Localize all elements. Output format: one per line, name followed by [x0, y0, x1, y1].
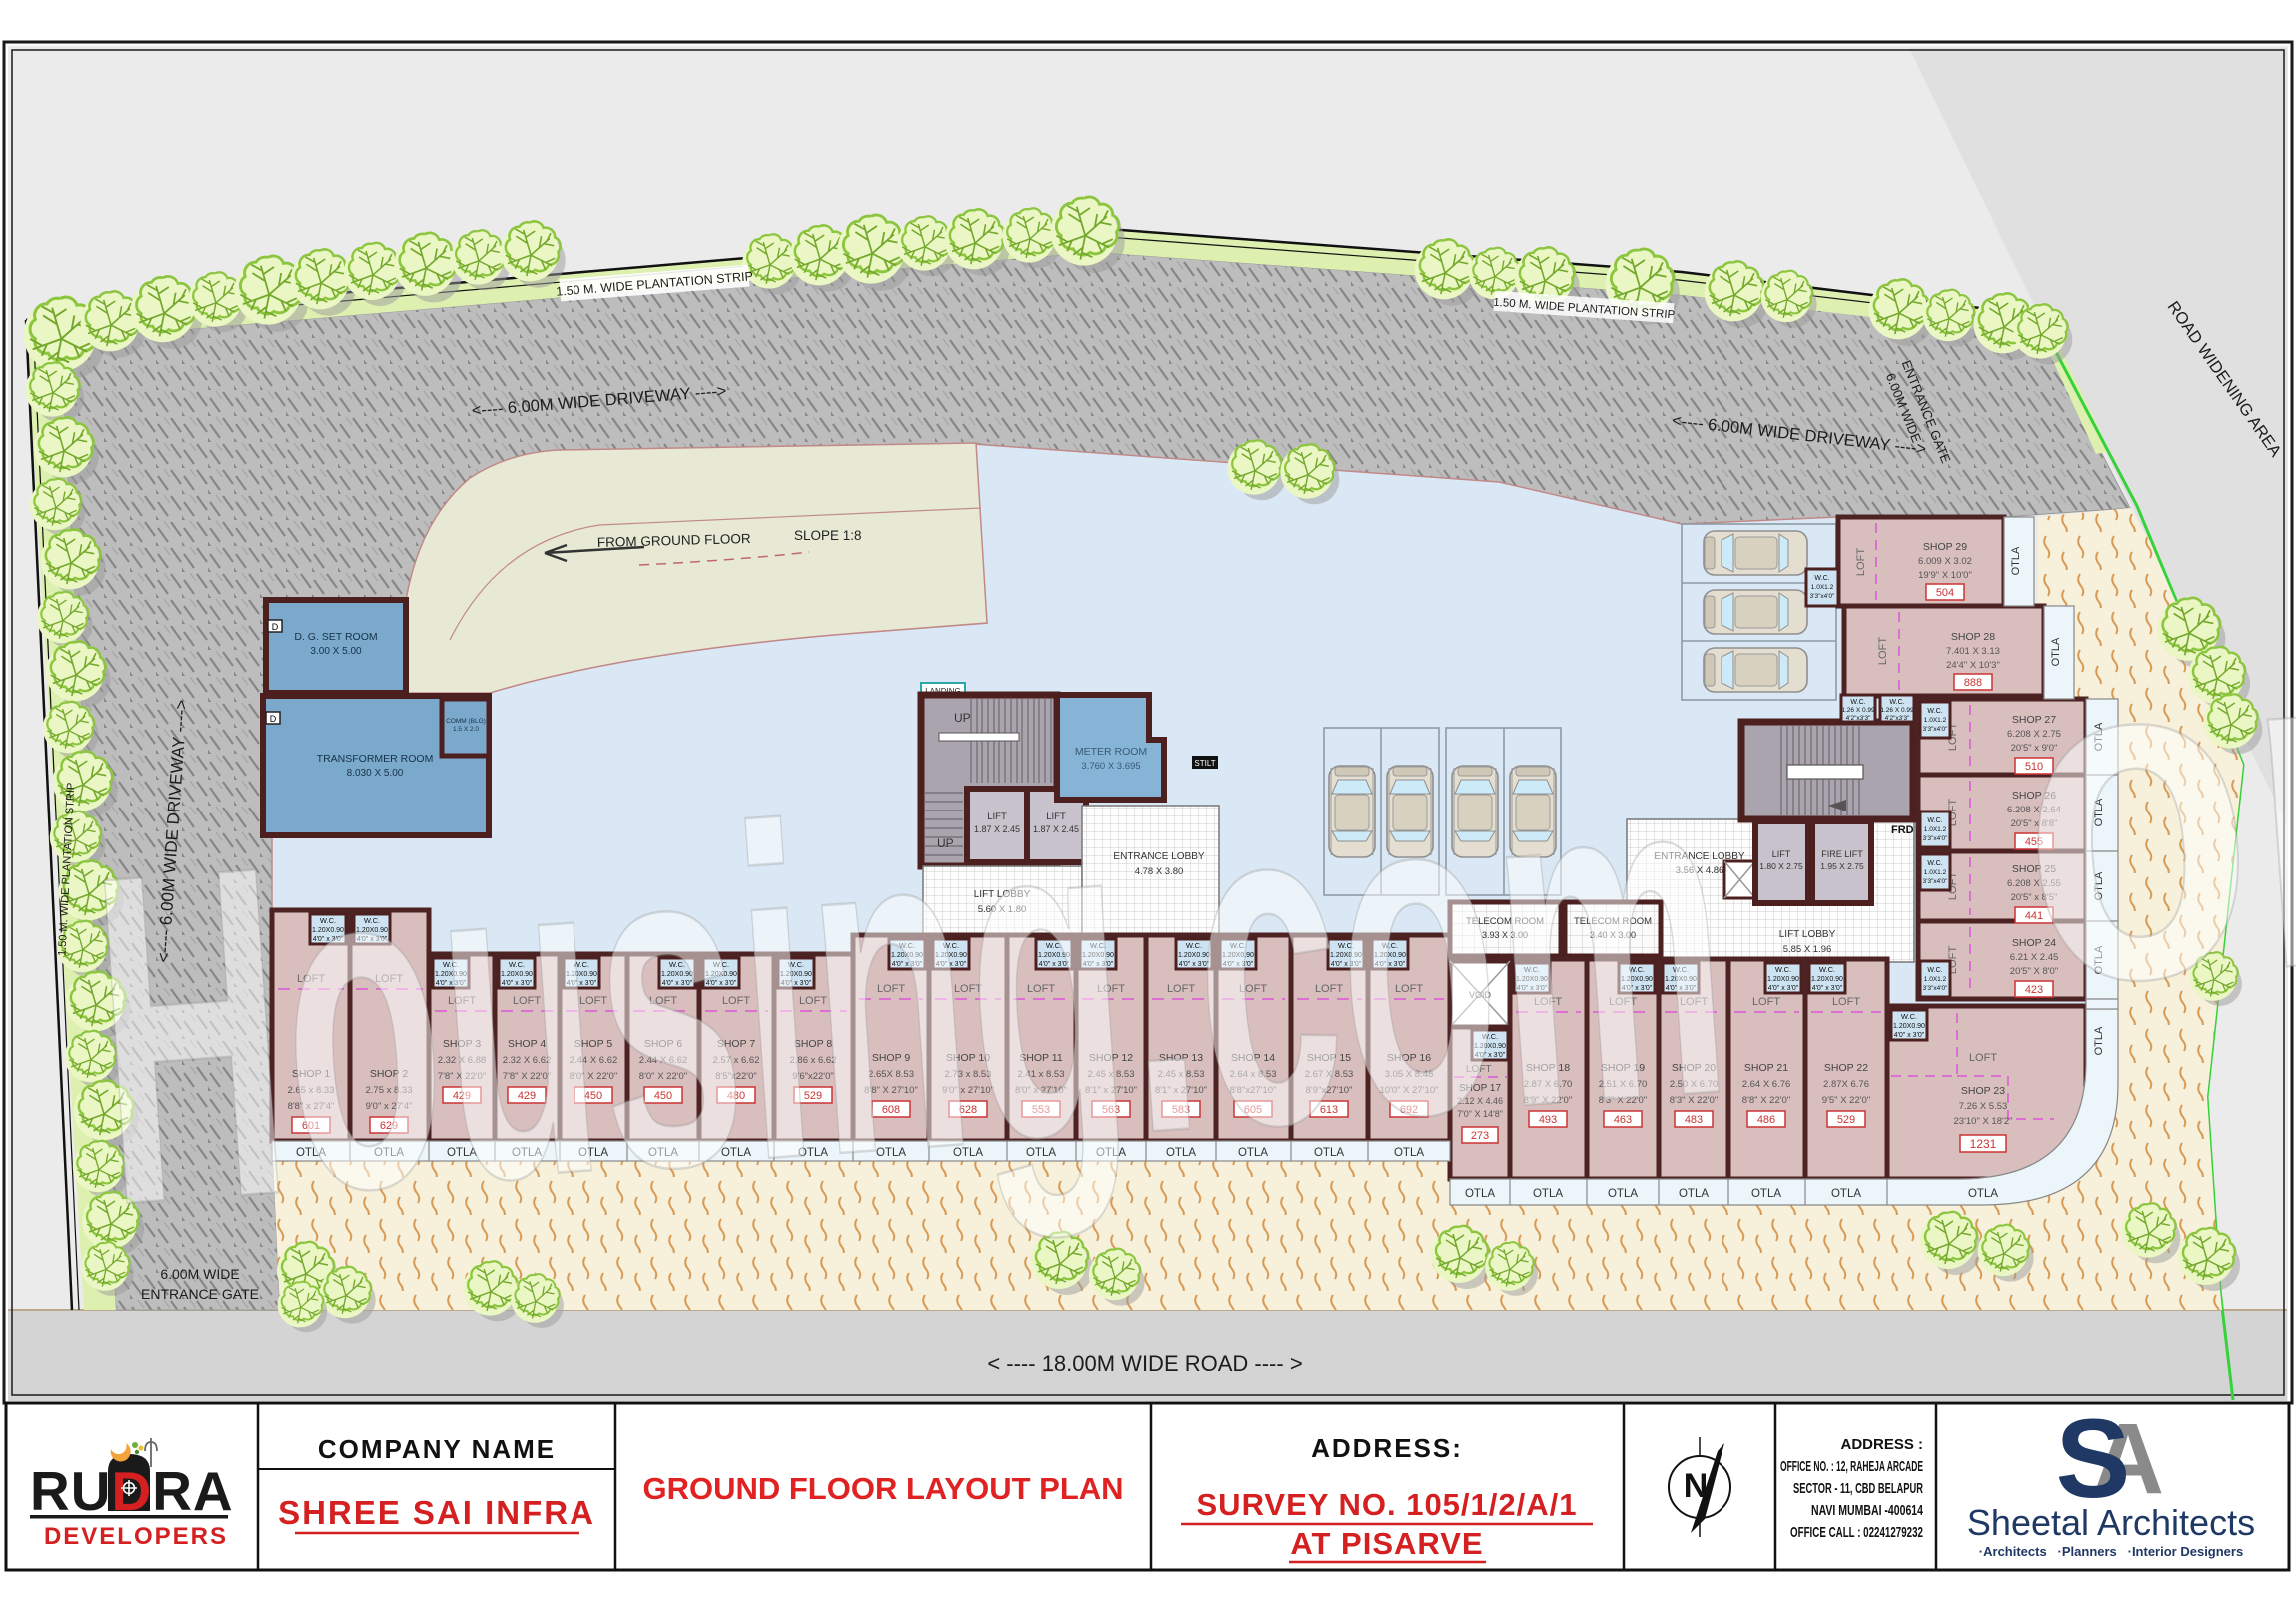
svg-text:3.00 X 5.00: 3.00 X 5.00: [310, 646, 362, 657]
svg-text:4'2"x3'3": 4'2"x3'3": [1885, 715, 1910, 722]
svg-text:LOFT: LOFT: [1969, 1052, 1997, 1064]
svg-text:7.401 X 3.13: 7.401 X 3.13: [1946, 646, 2000, 657]
svg-text:3'3"x4'0": 3'3"x4'0": [1923, 985, 1948, 992]
svg-text:W.C.: W.C.: [1850, 699, 1865, 706]
svg-text:W.C.: W.C.: [1901, 1012, 1917, 1021]
svg-text:1.0X1.2: 1.0X1.2: [1924, 976, 1947, 983]
svg-text:Sheetal Architects: Sheetal Architects: [1967, 1502, 2255, 1543]
svg-text:SHOP 23: SHOP 23: [1961, 1085, 2005, 1097]
svg-text:ADDRESS :: ADDRESS :: [1840, 1436, 1923, 1453]
svg-text:W.C.: W.C.: [1775, 965, 1791, 974]
svg-text:SLOPE 1:8: SLOPE 1:8: [794, 528, 862, 543]
svg-text:1.95 X 2.75: 1.95 X 2.75: [1820, 861, 1864, 871]
svg-text:3'3"x4'0": 3'3"x4'0": [1923, 835, 1948, 842]
svg-text:1.0X1.2: 1.0X1.2: [1924, 717, 1947, 724]
svg-text:LOFT: LOFT: [1855, 548, 1867, 576]
svg-text:504: 504: [1936, 587, 1954, 599]
svg-text:< ---- 18.00M WIDE ROAD ---- >: < ---- 18.00M WIDE ROAD ---- >: [987, 1351, 1302, 1376]
svg-text:7.26 X 5.53: 7.26 X 5.53: [1959, 1101, 2008, 1112]
svg-text:4'0" x 3'0": 4'0" x 3'0": [1894, 1032, 1925, 1039]
svg-text:1.20X0.90: 1.20X0.90: [1811, 976, 1843, 983]
svg-text:23'10" X 18'2": 23'10" X 18'2": [1954, 1116, 2013, 1127]
svg-text:1.0X1.2: 1.0X1.2: [1924, 869, 1947, 876]
svg-text:1.0X1.2: 1.0X1.2: [1924, 826, 1947, 833]
svg-text:D: D: [272, 622, 279, 632]
svg-text:1.26 X 0.99: 1.26 X 0.99: [1841, 707, 1875, 714]
svg-text:DEVELOPERS: DEVELOPERS: [44, 1523, 228, 1550]
svg-text:6.009 X 3.02: 6.009 X 3.02: [1918, 556, 1972, 567]
svg-text:19'9" X 10'0": 19'9" X 10'0": [1918, 570, 1972, 581]
svg-text:24'4" X 10'3": 24'4" X 10'3": [1946, 660, 2000, 671]
svg-text:SHOP 28: SHOP 28: [1951, 631, 1995, 643]
svg-text:COMPANY NAME: COMPANY NAME: [318, 1434, 556, 1464]
svg-text:SECTOR - 11, CBD BELAPUR: SECTOR - 11, CBD BELAPUR: [1793, 1480, 1923, 1497]
svg-text:om: om: [2003, 522, 2296, 1084]
svg-text:W.C.: W.C.: [1927, 817, 1942, 824]
svg-text:3'3"x4'0": 3'3"x4'0": [1923, 878, 1948, 885]
svg-text:W.C.: W.C.: [1819, 965, 1835, 974]
svg-text:1231: 1231: [1970, 1137, 1997, 1151]
svg-text:COMM (BLG): COMM (BLG): [446, 718, 486, 725]
svg-text:SHREE SAI INFRA: SHREE SAI INFRA: [278, 1494, 595, 1531]
svg-text:OTLA: OTLA: [1751, 1188, 1781, 1200]
svg-text:1.5 X 2.0: 1.5 X 2.0: [453, 726, 479, 733]
svg-text:529: 529: [1837, 1114, 1855, 1126]
svg-text:W.C.: W.C.: [1927, 708, 1942, 715]
svg-text:1.80 X 2.75: 1.80 X 2.75: [1759, 861, 1803, 871]
svg-text:5.85 X 1.96: 5.85 X 1.96: [1783, 944, 1832, 955]
svg-text:OFFICE CALL : 02241279232: OFFICE CALL : 02241279232: [1790, 1524, 1923, 1541]
svg-text:N: N: [1684, 1467, 1709, 1505]
svg-text:2.64 X 6.76: 2.64 X 6.76: [1742, 1079, 1791, 1090]
svg-text:4'0" x 3'0": 4'0" x 3'0": [1768, 985, 1799, 992]
svg-text:ADDRESS:: ADDRESS:: [1311, 1433, 1463, 1463]
svg-text:SHOP 29: SHOP 29: [1923, 541, 1967, 553]
svg-text:OFFICE NO. : 12, RAHEJA ARCADE: OFFICE NO. : 12, RAHEJA ARCADE: [1780, 1458, 1923, 1475]
svg-text:1.26 X 0.99: 1.26 X 0.99: [1880, 707, 1914, 714]
svg-text:8'8" X 22'0": 8'8" X 22'0": [1742, 1095, 1790, 1106]
svg-text:1.0X1.2: 1.0X1.2: [1811, 584, 1834, 591]
svg-text:LOFT: LOFT: [1877, 637, 1889, 665]
svg-text:LOFT: LOFT: [1832, 996, 1860, 1008]
svg-text:3'3"x4'0": 3'3"x4'0": [1923, 726, 1948, 733]
svg-text:1.20X0.90: 1.20X0.90: [1893, 1023, 1925, 1030]
svg-text:4'2"x3'3": 4'2"x3'3": [1846, 715, 1871, 722]
svg-text:D. G. SET ROOM: D. G. SET ROOM: [294, 631, 377, 643]
svg-text:486: 486: [1757, 1114, 1775, 1126]
svg-text:SHOP 22: SHOP 22: [1824, 1062, 1868, 1074]
svg-text:9'5" X 22'0": 9'5" X 22'0": [1822, 1095, 1870, 1106]
svg-text:·Architects ·Planners ·Int: ·Architects ·Planners ·Interior Designer…: [1979, 1544, 2243, 1559]
svg-text:W.C.: W.C.: [1814, 575, 1829, 582]
svg-text:LIFT LOBBY: LIFT LOBBY: [1779, 929, 1836, 940]
svg-text:NAVI MUMBAI -400614: NAVI MUMBAI -400614: [1811, 1502, 1923, 1519]
svg-text:SURVEY NO. 105/1/2/A/1: SURVEY NO. 105/1/2/A/1: [1197, 1487, 1578, 1522]
svg-text:OTLA: OTLA: [1968, 1188, 1998, 1200]
svg-text:D: D: [270, 714, 277, 724]
svg-text:2.87X 6.76: 2.87X 6.76: [1823, 1079, 1869, 1090]
svg-text:GROUND FLOOR LAYOUT PLAN: GROUND FLOOR LAYOUT PLAN: [642, 1471, 1123, 1506]
svg-text:FIRE LIFT: FIRE LIFT: [1821, 849, 1863, 859]
svg-text:W.C.: W.C.: [1889, 699, 1904, 706]
svg-text:888: 888: [1964, 677, 1982, 689]
svg-text:FRD: FRD: [1891, 824, 1914, 836]
svg-text:W.C.: W.C.: [1927, 860, 1942, 867]
svg-text:SHOP 21: SHOP 21: [1744, 1062, 1788, 1074]
svg-text:OTLA: OTLA: [1831, 1188, 1861, 1200]
svg-text:4'0" x 3'0": 4'0" x 3'0": [1812, 985, 1843, 992]
svg-text:RUDRA: RUDRA: [30, 1460, 234, 1522]
svg-text:AT PISARVE: AT PISARVE: [1290, 1526, 1483, 1561]
svg-text:LIFT: LIFT: [1772, 849, 1791, 859]
svg-text:3'3"x4'0": 3'3"x4'0": [1810, 593, 1835, 600]
svg-text:LOFT: LOFT: [1752, 996, 1780, 1008]
svg-text:1.20X0.90: 1.20X0.90: [1767, 976, 1799, 983]
svg-text:W.C.: W.C.: [1927, 967, 1942, 974]
